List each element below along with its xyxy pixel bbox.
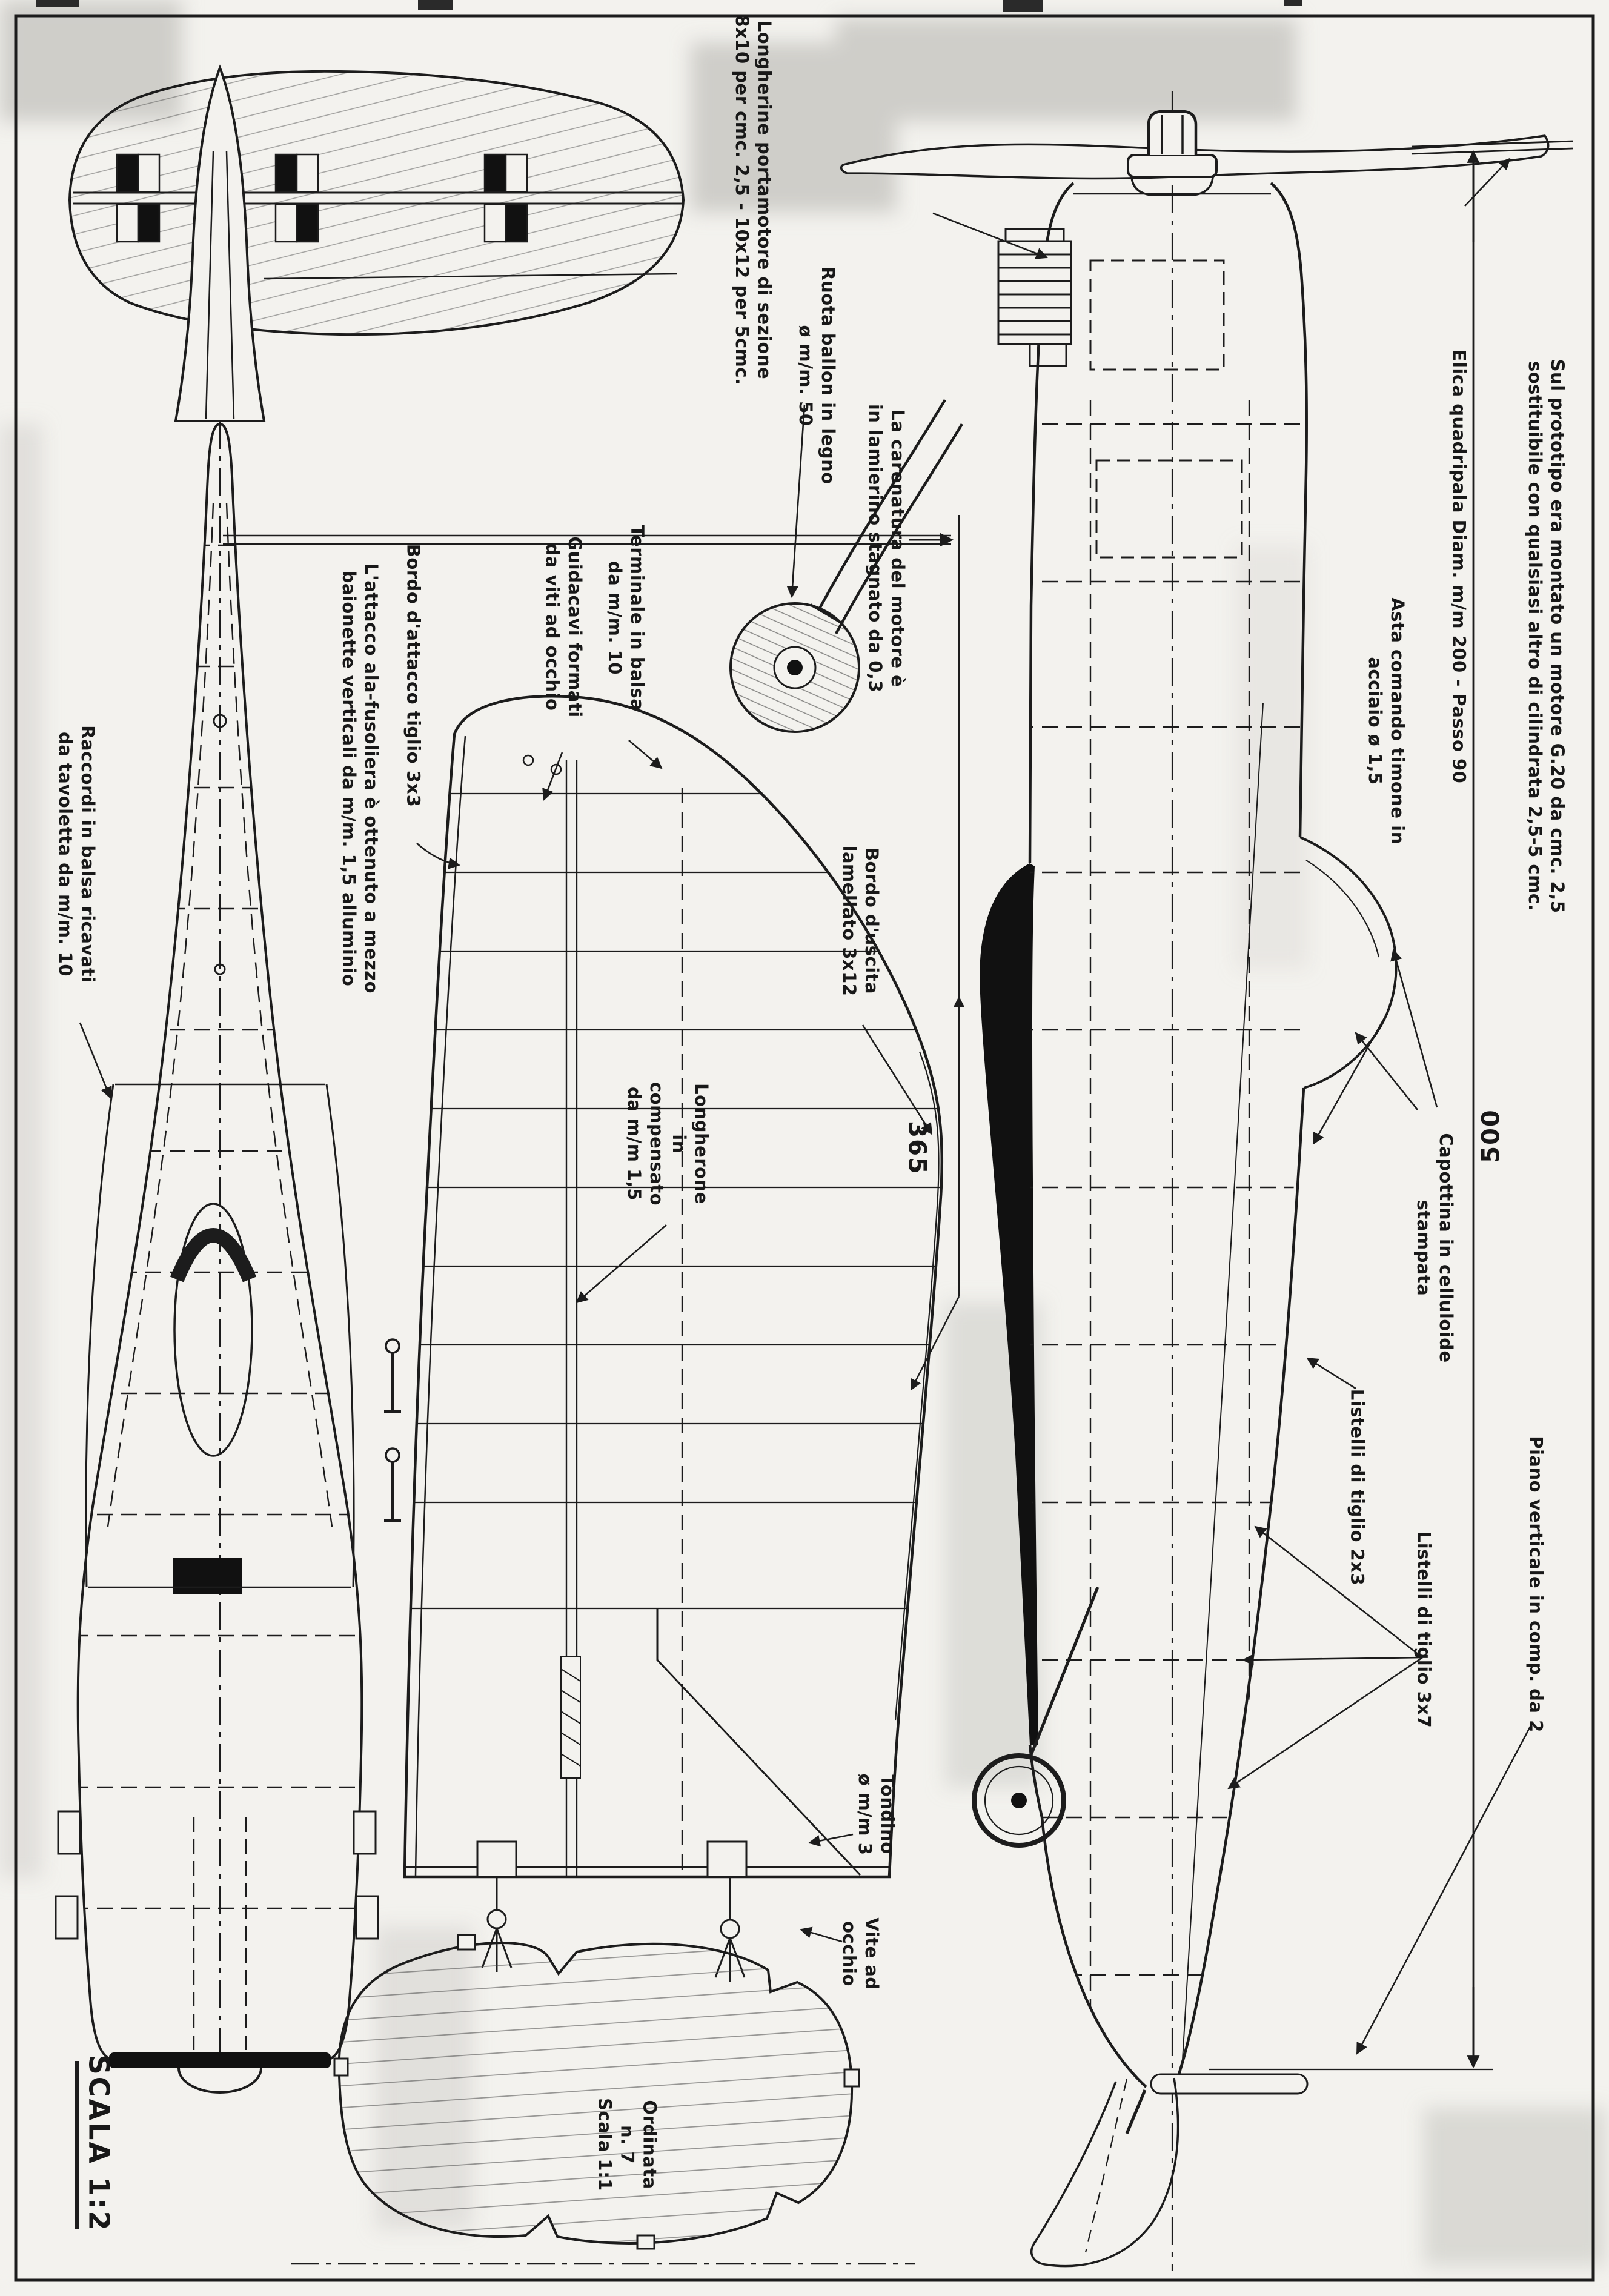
plan-sheet: Sul prototipo era montato un motore G.20…	[0, 0, 1609, 2296]
stabilizer-plan-view	[70, 68, 683, 421]
scan-edge-marks	[36, 0, 1302, 12]
canopy-side	[1300, 837, 1396, 1088]
rudder-outline	[1032, 2078, 1178, 2266]
wheel-detail	[731, 400, 962, 732]
engine-cylinder	[998, 229, 1242, 557]
spar-section	[561, 1657, 580, 1778]
dimension-500	[1209, 141, 1573, 2069]
bayonet-pins	[384, 1339, 401, 1521]
